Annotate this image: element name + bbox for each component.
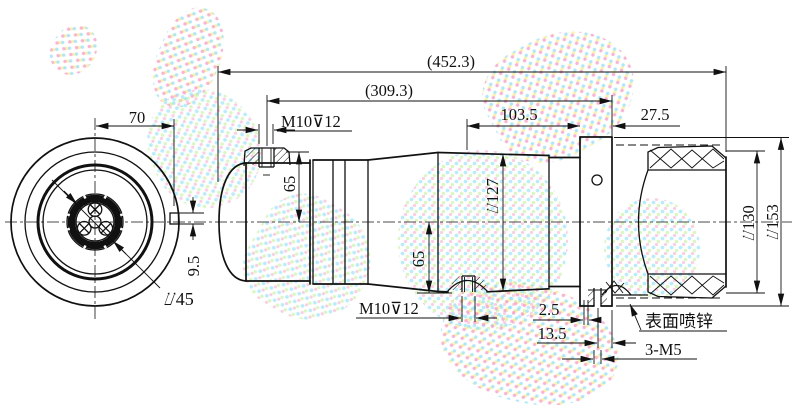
- dim-d130: ⌰130: [739, 205, 758, 241]
- dim-13-5: 13.5: [538, 324, 567, 343]
- thread-callout-m5: 3-M5: [645, 340, 682, 359]
- flange-hole: [592, 175, 602, 185]
- bottom-m10-boss: [447, 276, 488, 293]
- dim-9-5: 9.5: [184, 256, 203, 277]
- dim-d153: ⌰153: [763, 204, 782, 240]
- top-m10-boss: [244, 148, 290, 175]
- dim-65-top: 65: [280, 176, 299, 193]
- barrel-top: [438, 153, 549, 156]
- drawing-canvas: (452.3) (309.3) 103.5 27.5 70 M10⊽12 65 …: [0, 0, 800, 420]
- right-end-cap: [588, 145, 726, 306]
- technical-drawing: (452.3) (309.3) 103.5 27.5 70 M10⊽12 65 …: [0, 0, 800, 420]
- dim-body-length: (309.3): [365, 81, 413, 100]
- surface-treatment-note: 表面喷锌: [645, 312, 713, 331]
- dim-70: 70: [129, 108, 146, 127]
- dim-d127: ⌰127: [483, 178, 502, 214]
- dim-103-5: 103.5: [500, 105, 537, 124]
- thread-callout-bottom: M10⊽12: [359, 299, 419, 318]
- dim-27-5: 27.5: [641, 105, 670, 124]
- dimension-text: (452.3) (309.3) 103.5 27.5 70 M10⊽12 65 …: [129, 52, 782, 359]
- flange: [580, 137, 612, 306]
- dim-d45: ⌰45: [164, 289, 194, 309]
- side-view: [219, 137, 726, 306]
- thread-callout-top: M10⊽12: [281, 112, 341, 131]
- dim-2-5: 2.5: [539, 300, 560, 319]
- dim-overall-length: (452.3): [427, 52, 475, 71]
- dim-65-bottom: 65: [409, 251, 428, 268]
